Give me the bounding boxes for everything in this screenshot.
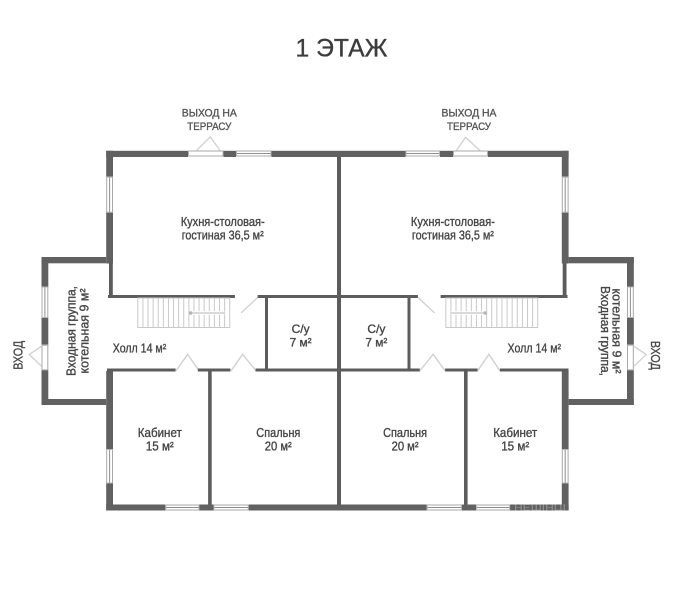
svg-text:ВХОД: ВХОД (11, 341, 26, 370)
svg-text:20 м²: 20 м² (392, 440, 419, 454)
svg-text:ВЫХОД НА: ВЫХОД НА (182, 108, 238, 120)
svg-text:Холл 14 м²: Холл 14 м² (508, 341, 562, 356)
svg-text:Спальня: Спальня (383, 426, 427, 440)
svg-text:ТЕРРАСУ: ТЕРРАСУ (187, 121, 232, 133)
svg-text:Кухня-столовая-: Кухня-столовая- (181, 215, 265, 229)
svg-text:ТЕРРАСУ: ТЕРРАСУ (447, 121, 492, 133)
svg-text:7 м²: 7 м² (365, 335, 387, 349)
svg-text:гостиная 36,5 м²: гостиная 36,5 м² (412, 229, 494, 243)
svg-text:7 м²: 7 м² (290, 335, 312, 349)
svg-text:Кабинет: Кабинет (493, 426, 537, 440)
svg-text:Кухня-столовая-: Кухня-столовая- (411, 215, 495, 229)
svg-text:15 м²: 15 м² (146, 440, 174, 454)
svg-text:ВЫХОД НА: ВЫХОД НА (442, 108, 498, 120)
svg-text:1 ЭТАЖ: 1 ЭТАЖ (296, 35, 388, 63)
svg-text:котельная 9 м²: котельная 9 м² (78, 289, 92, 374)
svg-text:С/у: С/у (367, 322, 385, 336)
svg-text:Холл 14 м²: Холл 14 м² (113, 341, 167, 356)
svg-text:НЕШІНЦІ: НЕШІНЦІ (514, 503, 566, 513)
svg-text:гостиная 36,5 м²: гостиная 36,5 м² (182, 229, 264, 243)
svg-text:С/у: С/у (292, 322, 310, 336)
svg-text:Входная группа,: Входная группа, (65, 286, 79, 376)
svg-text:Входная группа,: Входная группа, (598, 286, 612, 376)
svg-text:20 м²: 20 м² (265, 440, 292, 454)
svg-text:Кабинет: Кабинет (138, 426, 182, 440)
svg-text:ВХОД: ВХОД (648, 341, 663, 370)
svg-text:15 м²: 15 м² (501, 440, 529, 454)
svg-text:Спальня: Спальня (256, 426, 300, 440)
